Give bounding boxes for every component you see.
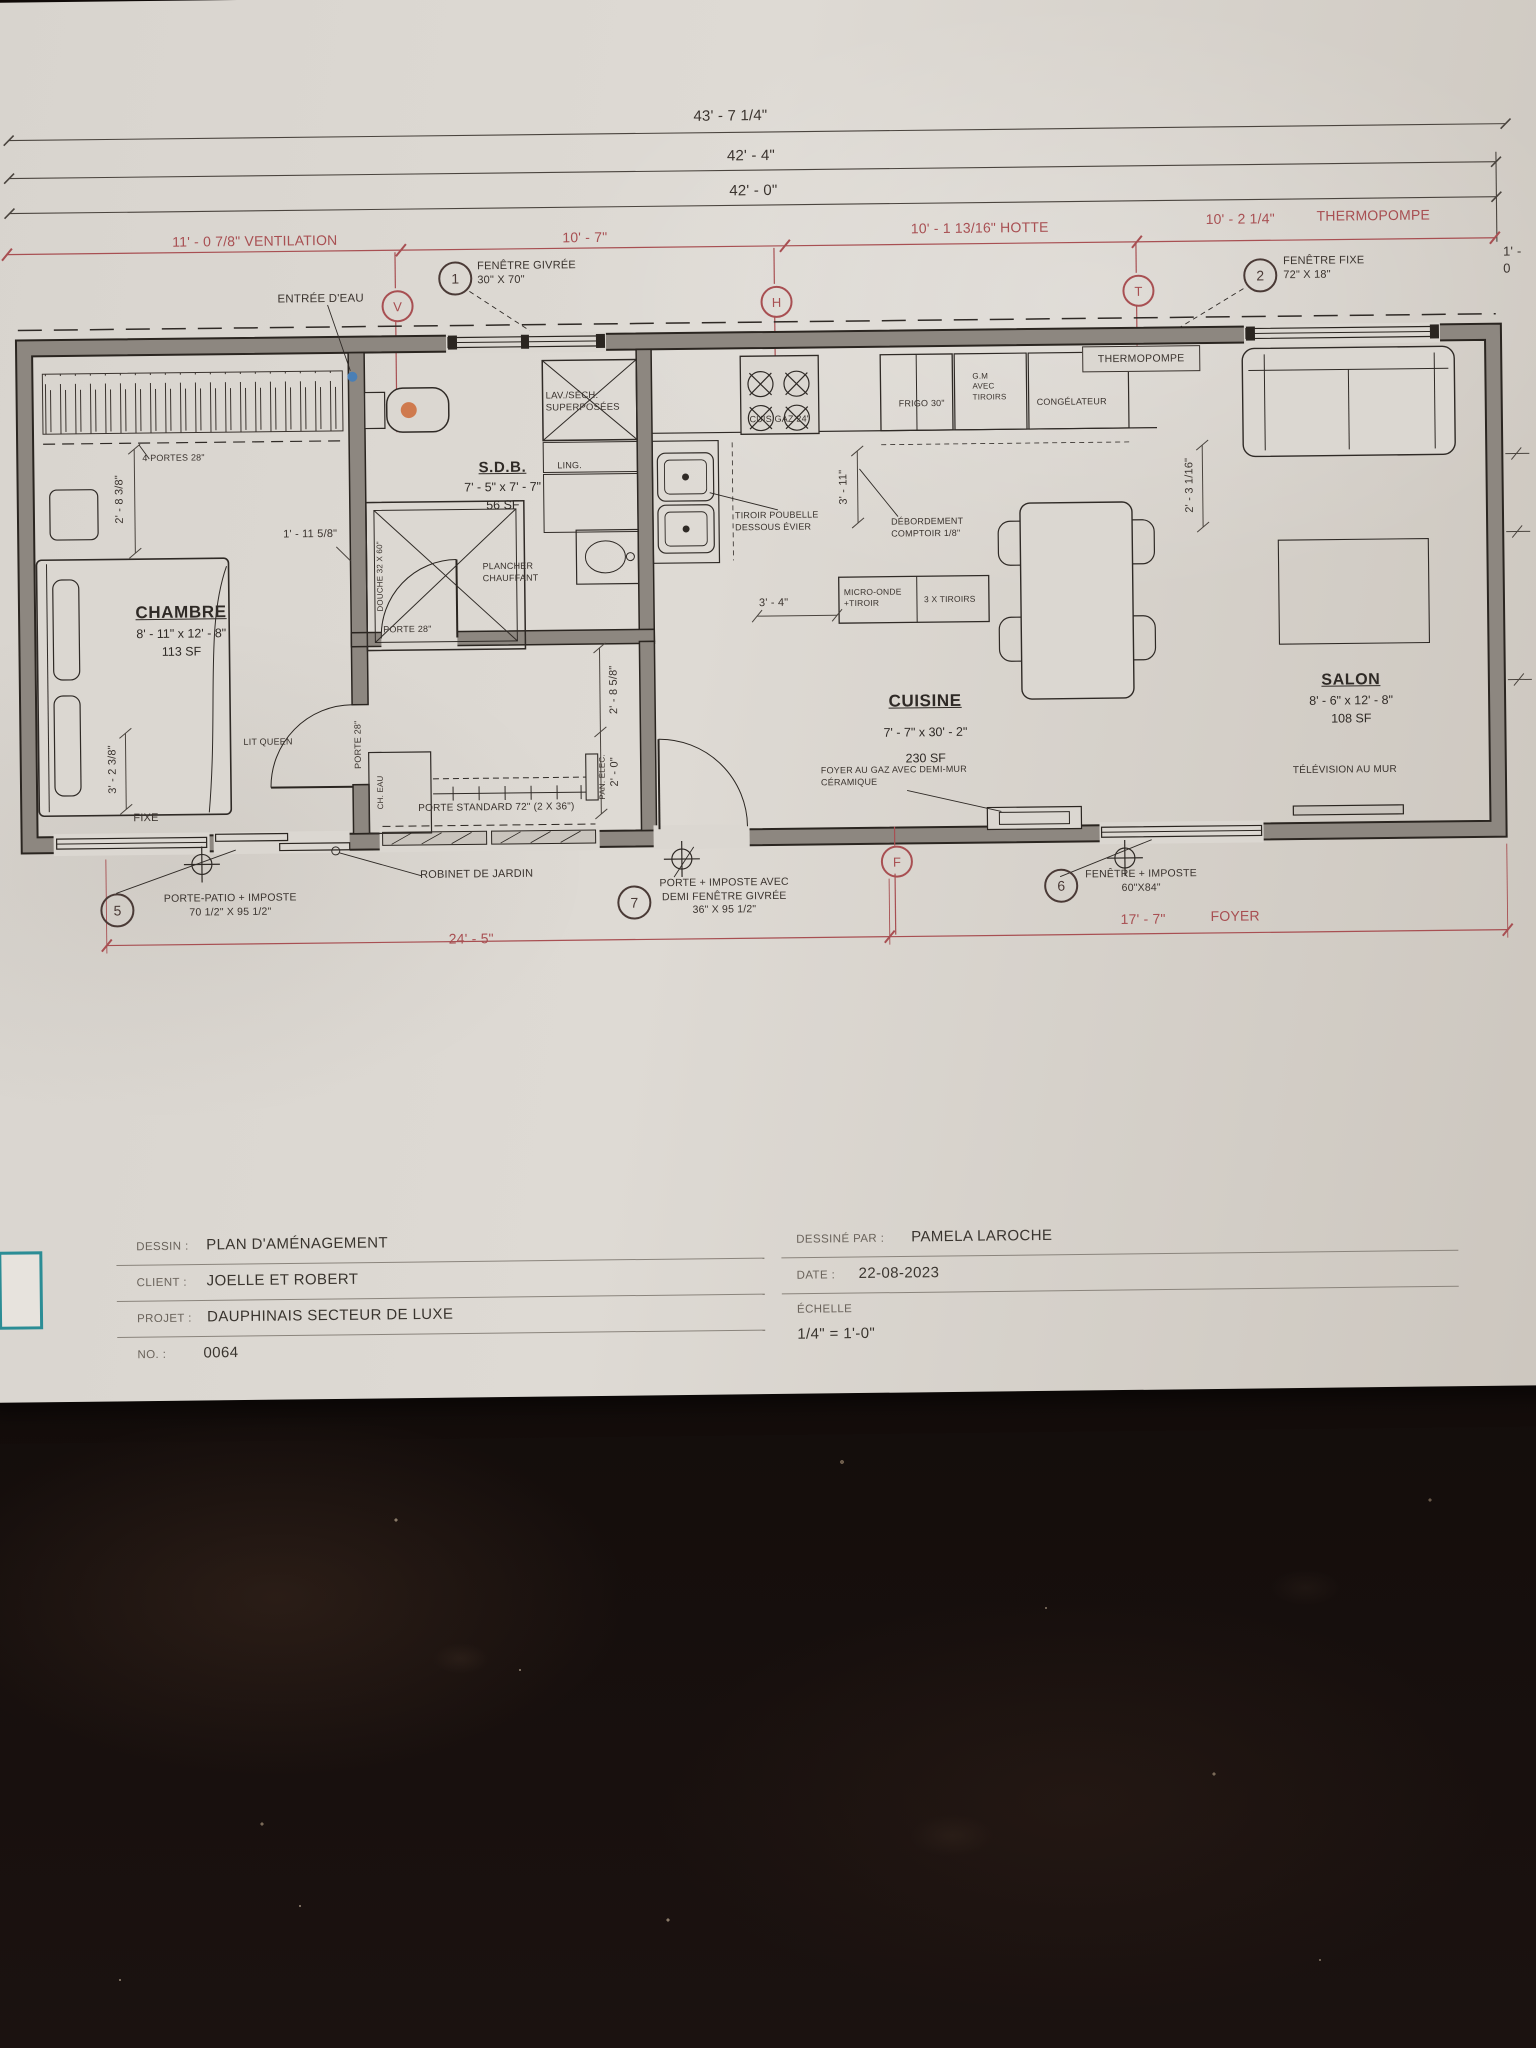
floor-plan-drawing (0, 0, 1536, 1399)
sofa (1242, 346, 1455, 456)
title-block-rules (116, 1250, 1459, 1337)
titleblock-date-value: 22-08-2023 (858, 1264, 939, 1282)
room-salon-dims: 8' - 6" x 12' - 8" (1309, 693, 1393, 708)
queen-bed-label: LIT QUEEN (243, 736, 292, 748)
titleblock-projet-value: DAUPHINAIS SECTEUR DE LUXE (207, 1306, 453, 1326)
titleblock-client-value: JOELLE ET ROBERT (207, 1271, 359, 1290)
shower-label: DOUCHE 32 X 60" (375, 541, 386, 611)
room-chambre-area: 113 SF (136, 644, 227, 659)
dim-2-8-58: 2' - 8 5/8" (607, 665, 622, 714)
fridge-label: FRIGO 30" (899, 398, 945, 410)
logo-box (0, 1251, 43, 1329)
room-chambre-dims: 8' - 11" x 12' - 8" (136, 626, 227, 641)
titleblock-client-label: CLIENT : (137, 1277, 187, 1290)
titleblock-echelle-value: 1/4" = 1'-0" (797, 1325, 875, 1343)
callout-6-number: 6 (1057, 878, 1065, 894)
washer-dryer-label: LAV./SÉCH. SUPERPOSÉES (546, 390, 620, 416)
dim-hotte: 10' - 1 13/16" HOTTE (911, 218, 1049, 238)
grid-marker-hotte: H (760, 286, 792, 318)
freezer-label: CONGÉLATEUR (1037, 396, 1107, 408)
room-cuisine-name: CUISINE (883, 691, 967, 712)
callout-2-circle: 2 (1243, 258, 1277, 292)
callout-6-circle: 6 (1044, 869, 1078, 903)
overall-dim-42-4: 42' - 4" (727, 146, 775, 166)
room-chambre-name: CHAMBRE (135, 602, 226, 623)
marker-v-letter: V (393, 299, 402, 314)
hall-closet (369, 750, 599, 834)
dim-foyer-word: FOYER (1210, 906, 1259, 925)
callout-5-note: PORTE-PATIO + IMPOSTE 70 1/2" X 95 1/2" (164, 891, 297, 920)
dim-17-7: 17' - 7" (1120, 910, 1165, 929)
water-entry-label: ENTRÉE D'EAU (277, 292, 364, 308)
garden-faucet-label: ROBINET DE JARDIN (420, 867, 533, 883)
dim-3-2-38: 3' - 2 3/8" (105, 745, 120, 794)
callout-2-note: FENÊTRE FIXE 72" X 18" (1283, 253, 1365, 283)
salon-rug (1278, 539, 1429, 645)
room-salon-name: SALON (1309, 671, 1393, 690)
room-sdb-name: S.D.B. (464, 459, 541, 477)
callout-6-note: FENÊTRE + IMPOSTE 60"X84" (1085, 867, 1197, 896)
callout-7-note: PORTE + IMPOSTE AVEC DEMI FENÊTRE GIVRÉE… (659, 876, 789, 918)
hall-door-label: PORTE 28" (352, 720, 364, 768)
marker-f-letter: F (893, 854, 901, 869)
titleblock-par-label: DESSINÉ PAR : (796, 1233, 884, 1246)
dim-thermopompe-word: THERMOPOMPE (1317, 205, 1431, 224)
trash-drawer-label: TIROIR POUBELLE DESSOUS ÉVIER (735, 509, 819, 533)
room-sdb-dims: 7' - 5" x 7' - 7" (464, 480, 541, 495)
titleblock-par-value: PAMELA LAROCHE (911, 1227, 1052, 1246)
bedroom-closet (42, 371, 343, 444)
fridge (880, 354, 953, 431)
callout-5-circle: 5 (100, 893, 134, 927)
heated-floor-label: PLANCHER CHAUFFANT (482, 561, 538, 585)
dim-3-11: 3' - 11" (836, 470, 851, 505)
titleblock-dessin-value: PLAN D'AMÉNAGEMENT (206, 1234, 388, 1253)
counter-overhang-label: DÉBORDEMENT COMPTOIR 1/8" (891, 516, 963, 540)
bathroom-door-label: PORTE 28" (383, 624, 431, 636)
room-cuisine-dims: 7' - 7" x 30' - 2" (883, 725, 967, 740)
dim-24-5: 24' - 5" (449, 929, 494, 948)
dim-2-0: 2' - 0" (608, 757, 623, 787)
wall-tv-label: TÉLÉVISION AU MUR (1293, 763, 1397, 777)
closet-doors-label: 4 PORTES 28" (142, 452, 205, 464)
room-chambre: CHAMBRE 8' - 11" x 12' - 8" 113 SF (135, 602, 227, 659)
grid-marker-ventilation: V (381, 290, 413, 322)
vanity-sink (576, 529, 639, 584)
dim-2-8-38: 2' - 8 3/8" (112, 475, 127, 524)
toilet (365, 388, 449, 433)
titleblock-date-label: DATE : (797, 1269, 836, 1281)
callout-1-number: 1 (451, 271, 459, 287)
grid-marker-thermopompe: T (1122, 275, 1154, 307)
overall-dim-42-0: 42' - 0" (729, 181, 777, 201)
grid-marker-foyer: F (881, 845, 913, 877)
heat-pump-box: THERMOPOMPE (1082, 345, 1200, 372)
gas-range-label: CUIS GAZ 24" (750, 414, 811, 426)
titleblock-no-value: 0064 (203, 1344, 238, 1361)
drawers-label: 3 X TIROIRS (924, 594, 976, 606)
water-heater-label: CH. EAU (376, 775, 387, 809)
titleblock-echelle-label: ÉCHELLE (797, 1303, 852, 1316)
microwave-label: MICRO-ONDE +TIROIR (844, 587, 902, 610)
nightstand (50, 490, 99, 541)
pantry-label: G.M AVEC TIROIRS (972, 371, 1006, 403)
heat-pump-label: THERMOPOMPE (1098, 352, 1185, 365)
marker-h-letter: H (772, 294, 782, 309)
gas-fireplace-label: FOYER AU GAZ AVEC DEMI-MUR CÉRAMIQUE (821, 764, 967, 789)
room-salon-area: 108 SF (1309, 711, 1393, 726)
dim-ventilation: 11' - 0 7/8" VENTILATION (172, 231, 337, 251)
washer-dryer-stack (542, 359, 638, 532)
callout-5-number: 5 (113, 902, 121, 918)
dim-3-4: 3' - 4" (759, 596, 789, 611)
marker-t-letter: T (1134, 283, 1142, 298)
callout-7-number: 7 (630, 895, 638, 911)
callout-2-number: 2 (1256, 267, 1264, 283)
titleblock-dessin-label: DESSIN : (136, 1241, 189, 1254)
linen-label: LING. (557, 460, 582, 472)
room-sdb-area: 56 SF (464, 498, 541, 513)
titleblock-no-label: NO. : (137, 1349, 166, 1361)
floor-plan-sheet: 43' - 7 1/4" 42' - 4" 42' - 0" 11' - 0 7… (0, 0, 1536, 1399)
callout-1-note: FENÊTRE GIVRÉE 30" X 70" (477, 258, 576, 288)
dim-2-3-116: 2' - 3 1/16" (1182, 458, 1197, 513)
paper-sheet: 43' - 7 1/4" 42' - 4" 42' - 0" 11' - 0 7… (0, 0, 1536, 1403)
dim-10-7: 10' - 7" (562, 228, 607, 247)
fixed-window-label: FIXE (133, 811, 158, 826)
room-cuisine: CUISINE 7' - 7" x 30' - 2" 230 SF (883, 691, 968, 766)
overall-dim-43: 43' - 7 1/4" (693, 106, 767, 126)
callout-7-circle: 7 (617, 885, 651, 919)
room-sdb: S.D.B. 7' - 5" x 7' - 7" 56 SF (464, 459, 541, 513)
dim-thermopompe-value: 10' - 2 1/4" (1206, 209, 1275, 228)
table-speckles (0, 1340, 1536, 2048)
room-salon: SALON 8' - 6" x 12' - 8" 108 SF (1309, 671, 1393, 726)
kitchen-sinks (657, 453, 714, 554)
callout-1-circle: 1 (438, 261, 472, 295)
queen-bed (36, 558, 231, 816)
dim-1-11-58: 1' - 11 5/8" (283, 527, 337, 542)
dining-table-chairs (998, 502, 1156, 700)
dim-right-edge: 1' - 0 (1503, 243, 1531, 277)
titleblock-projet-label: PROJET : (137, 1313, 192, 1326)
room-cuisine-area: 230 SF (884, 751, 968, 766)
standard-door-label: PORTE STANDARD 72" (2 X 36") (418, 800, 574, 815)
